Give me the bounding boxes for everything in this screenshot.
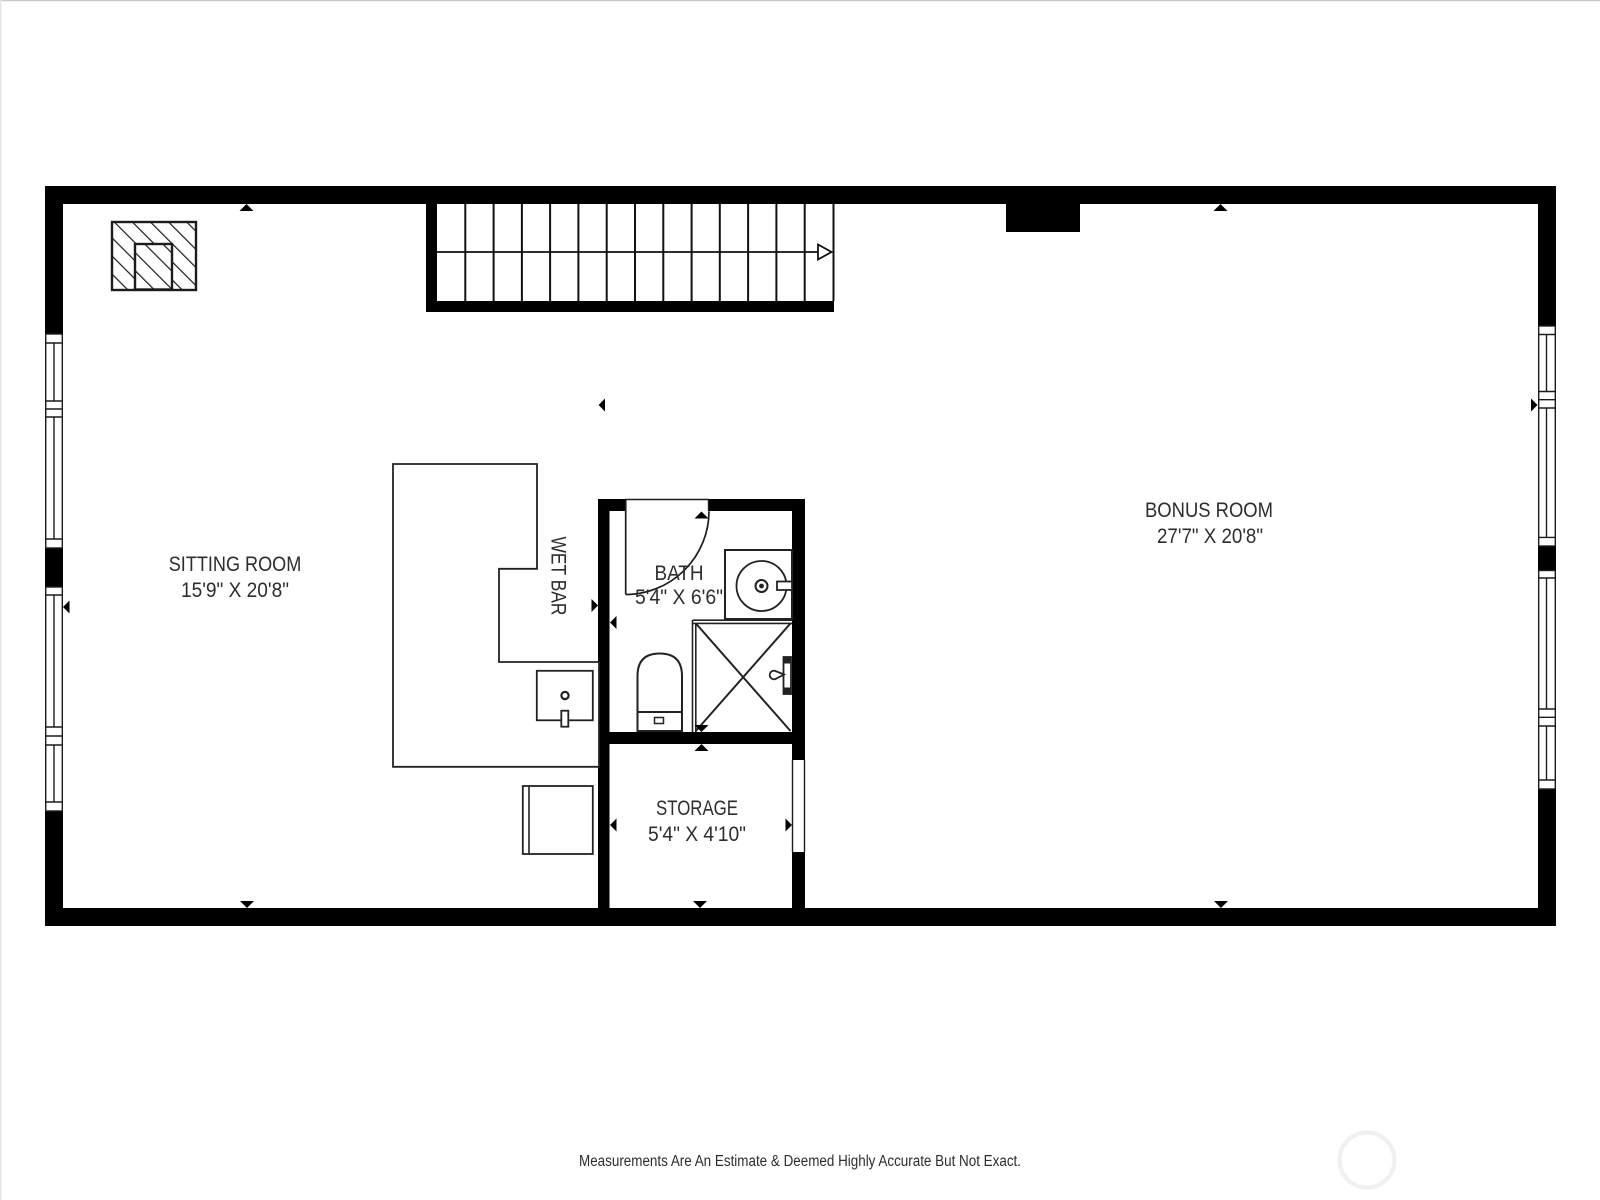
svg-text:WET BAR: WET BAR	[546, 537, 569, 616]
svg-text:5'4" X 4'10": 5'4" X 4'10"	[648, 823, 746, 846]
svg-text:5'4" X 6'6": 5'4" X 6'6"	[635, 586, 723, 609]
svg-text:SITTING ROOM: SITTING ROOM	[169, 553, 302, 576]
svg-text:BONUS ROOM: BONUS ROOM	[1145, 499, 1273, 522]
svg-text:Measurements Are An Estimate &: Measurements Are An Estimate & Deemed Hi…	[579, 1153, 1021, 1170]
svg-text:BATH: BATH	[655, 562, 704, 585]
svg-text:STORAGE: STORAGE	[656, 797, 738, 820]
svg-text:27'7" X 20'8": 27'7" X 20'8"	[1157, 525, 1263, 548]
svg-text:15'9" X 20'8": 15'9" X 20'8"	[181, 579, 289, 602]
